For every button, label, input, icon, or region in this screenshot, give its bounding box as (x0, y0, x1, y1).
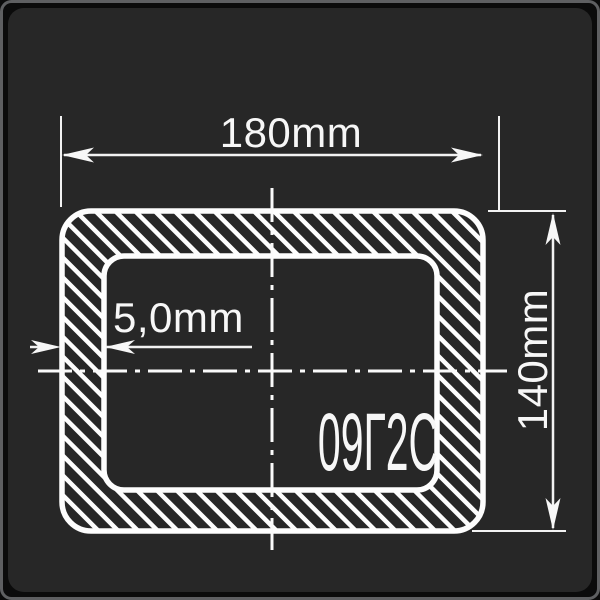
thickness-dimension-label: 5,0mm (113, 294, 244, 341)
height-dimension-label: 140mm (509, 289, 556, 432)
width-dimension-label: 180mm (220, 109, 363, 156)
drawing-canvas: 180mm 140mm 5,0mm 09Г2С (0, 0, 600, 600)
steel-grade-label: 09Г2С (318, 395, 438, 487)
